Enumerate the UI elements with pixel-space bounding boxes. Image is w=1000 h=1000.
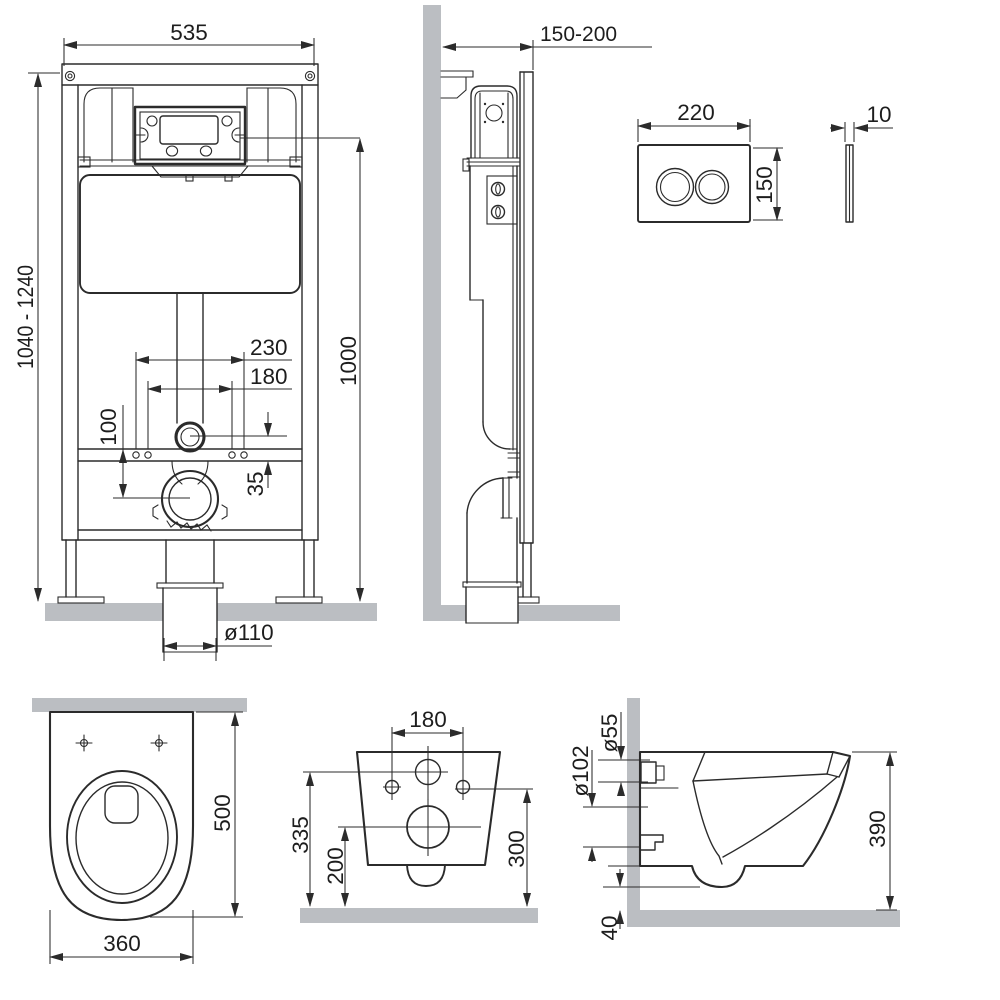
frame-side-view: 150-200 (423, 5, 652, 623)
dim-frame-depth: 150-200 (443, 23, 652, 70)
outlet-hole (338, 799, 481, 856)
cistern-side (463, 158, 519, 478)
dim-label-fixing-inner: 180 (250, 364, 288, 389)
floor-surface (300, 908, 538, 923)
dim-label-plate-width: 220 (677, 100, 715, 125)
mounting-holes (383, 727, 533, 800)
corner-screw-icon (65, 71, 314, 80)
dim-label-hole-height: 300 (504, 830, 529, 868)
trap-bump (407, 865, 445, 886)
dim-label-frame-height-range: 1040 - 1240 (13, 265, 38, 369)
bowl-side-view: ø55 ø102 390 40 (568, 698, 900, 941)
service-panel (135, 107, 245, 164)
bowl-rear-view: 180 335 200 300 (288, 707, 538, 923)
bowl-outline (50, 712, 193, 920)
dim-label-hole-spacing: 180 (409, 707, 447, 732)
dim-fixing-outer: 230 (136, 335, 292, 449)
wall-surface (32, 698, 247, 712)
floor-surface (627, 910, 900, 927)
dim-label-bowl-width: 360 (103, 931, 141, 956)
bowl-top-view: 500 360 (32, 698, 247, 964)
dim-outlet-height: 200 (323, 828, 348, 906)
frame-rail-side (515, 72, 539, 603)
dim-label-fixing-outer: 230 (250, 335, 288, 360)
frame-outline (58, 64, 322, 603)
dim-label-outlet-drop: 100 (96, 408, 121, 446)
wall-surface (423, 5, 441, 605)
dim-frame-height-range: 1040 - 1240 (13, 73, 60, 601)
inlet-hole (303, 746, 448, 800)
dim-frame-width: 535 (64, 20, 314, 66)
floor-surface (423, 605, 620, 621)
wall-surface (627, 698, 640, 910)
drain-socket (153, 461, 227, 652)
dim-plate-width: 220 (638, 100, 750, 142)
dim-bowl-height: 390 (852, 752, 897, 910)
dim-label-install-height: 1000 (336, 336, 361, 386)
cistern-front (78, 157, 302, 293)
bowl-side-details (640, 752, 850, 864)
dim-label-inlet-offset: 35 (243, 471, 268, 496)
flush-button-small (696, 171, 729, 204)
flush-plate-front-view: 220 150 (638, 100, 783, 222)
upper-brackets (84, 88, 296, 162)
dim-label-plate-thickness: 10 (866, 102, 891, 127)
technical-drawing: 535 1040 - 1240 1000 230 180 (0, 0, 1000, 1000)
dim-hole-height: 300 (504, 790, 529, 906)
flush-plate-side-view: 10 (830, 102, 893, 222)
dim-floor-clearance: 40 (597, 866, 700, 941)
dim-bowl-width: 360 (50, 910, 193, 964)
dim-hole-spacing: 180 (392, 707, 463, 733)
seat-outer-ring (67, 771, 177, 903)
dim-label-drain-diameter: ø110 (224, 620, 274, 645)
installation-drawing-page: 535 1040 - 1240 1000 230 180 (0, 0, 1000, 1000)
dim-label-outlet-diameter: ø102 (568, 745, 593, 796)
flush-pipe (176, 293, 204, 451)
dim-label-frame-depth: 150-200 (540, 23, 617, 46)
dim-label-outlet-height: 200 (323, 847, 348, 885)
wall-bracket (441, 71, 473, 98)
fixing-hole-marker (76, 735, 167, 751)
seat-inner-ring (76, 782, 168, 894)
dim-plate-height: 150 (752, 148, 783, 220)
flush-opening (105, 786, 138, 823)
dim-label-bowl-depth: 500 (210, 794, 235, 832)
fill-valve-housing (471, 86, 517, 158)
flush-button-large (657, 169, 694, 206)
dim-plate-thickness: 10 (830, 102, 893, 142)
dim-inlet-height: 335 (288, 773, 313, 906)
dim-label-floor-clearance: 40 (597, 915, 622, 940)
dim-label-frame-width: 535 (170, 20, 208, 45)
dim-label-inlet-diameter: ø55 (597, 714, 622, 753)
dim-label-bowl-height: 390 (865, 810, 890, 848)
flush-bend-side (483, 422, 520, 477)
dim-label-plate-height: 150 (752, 166, 777, 204)
drain-bend-side (463, 478, 521, 623)
bowl-side-outline (640, 752, 850, 887)
dim-label-inlet-height: 335 (288, 816, 313, 854)
frame-front-view: 535 1040 - 1240 1000 230 180 (13, 20, 377, 661)
